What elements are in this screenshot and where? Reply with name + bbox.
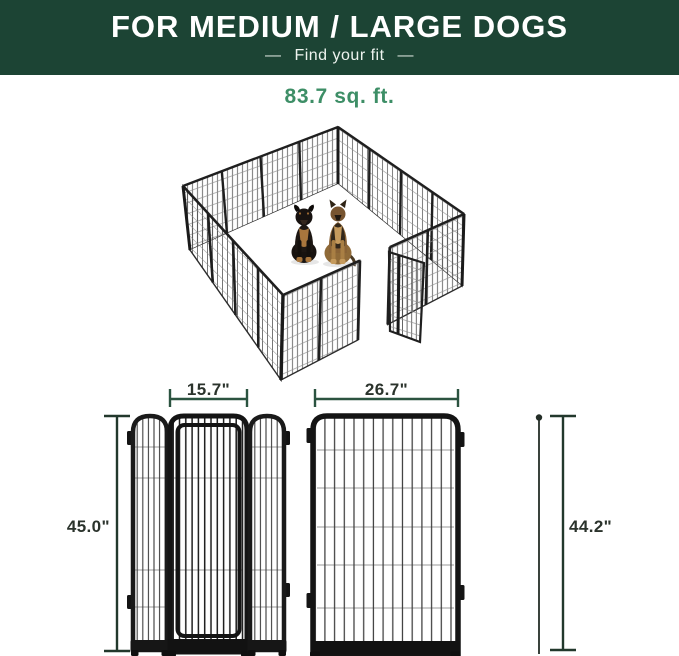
- door-section-width-label: 15.7": [187, 383, 230, 399]
- pen-corner-post: [281, 295, 283, 380]
- header-subtitle: — Find your fit —: [0, 47, 679, 65]
- header-banner: FOR MEDIUM / LARGE DOGS — Find your fit …: [0, 0, 679, 75]
- ground-stake: [536, 414, 542, 654]
- width-dimension-panel: 26.7": [315, 383, 458, 407]
- wide-panel: [313, 416, 458, 654]
- dash-left: —: [265, 47, 282, 65]
- side-panel-left: [133, 416, 167, 650]
- panel-dimensions-diagram: 15.7" 26.7" 45.0": [0, 383, 679, 656]
- pen-open-door: [389, 252, 424, 342]
- page-title: FOR MEDIUM / LARGE DOGS: [0, 0, 679, 44]
- subtitle-text: Find your fit: [294, 47, 384, 65]
- area-size-label: 83.7 sq. ft.: [0, 85, 679, 109]
- dash-right: —: [398, 47, 415, 65]
- panel-height-label: 44.2": [569, 517, 612, 536]
- wide-panel-diagram: [307, 416, 465, 656]
- playpen-isometric-illustration: [0, 115, 679, 390]
- pen-corner-post: [462, 214, 464, 286]
- side-panel-right: [250, 416, 284, 650]
- width-dimension-door-section: 15.7": [170, 383, 247, 407]
- door-section-height-label: 45.0": [67, 517, 110, 536]
- panel-width-label: 26.7": [365, 383, 408, 399]
- door-panel-group-diagram: [127, 416, 290, 656]
- door-panel: [170, 416, 247, 652]
- height-dimension-door-section: 45.0": [67, 416, 130, 651]
- height-dimension-panel: 44.2": [550, 416, 612, 650]
